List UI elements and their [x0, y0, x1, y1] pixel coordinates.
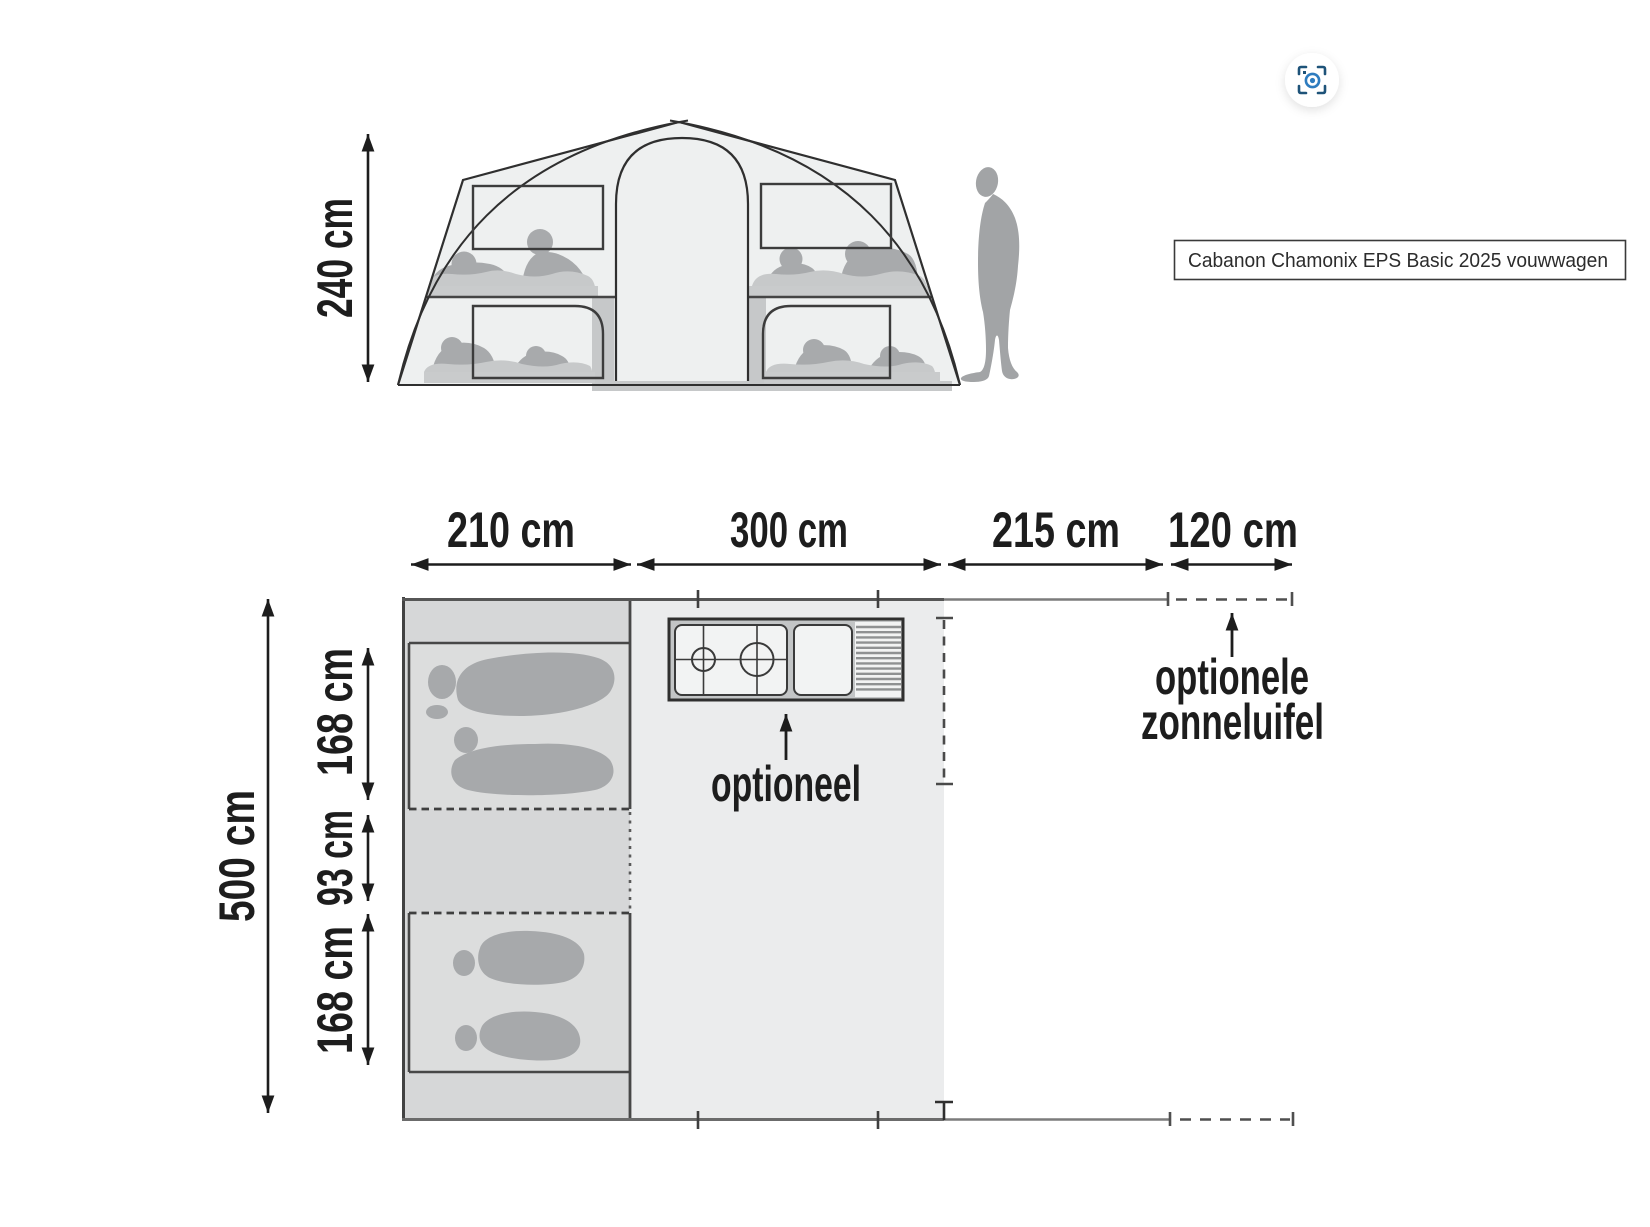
- svg-text:120 cm: 120 cm: [1168, 502, 1298, 558]
- svg-text:210 cm: 210 cm: [447, 502, 575, 558]
- svg-text:215 cm: 215 cm: [992, 502, 1120, 558]
- svg-text:zonneluifel: zonneluifel: [1141, 694, 1324, 750]
- svg-text:300 cm: 300 cm: [730, 502, 848, 558]
- svg-text:168 cm: 168 cm: [307, 926, 363, 1054]
- svg-text:240 cm: 240 cm: [307, 198, 363, 318]
- svg-text:168 cm: 168 cm: [307, 648, 363, 776]
- svg-text:93 cm: 93 cm: [307, 810, 363, 906]
- svg-text:Cabanon Chamonix EPS Basic 202: Cabanon Chamonix EPS Basic 2025 vouwwage…: [1188, 249, 1608, 272]
- svg-text:500 cm: 500 cm: [209, 790, 265, 922]
- svg-text:optioneel: optioneel: [711, 756, 861, 812]
